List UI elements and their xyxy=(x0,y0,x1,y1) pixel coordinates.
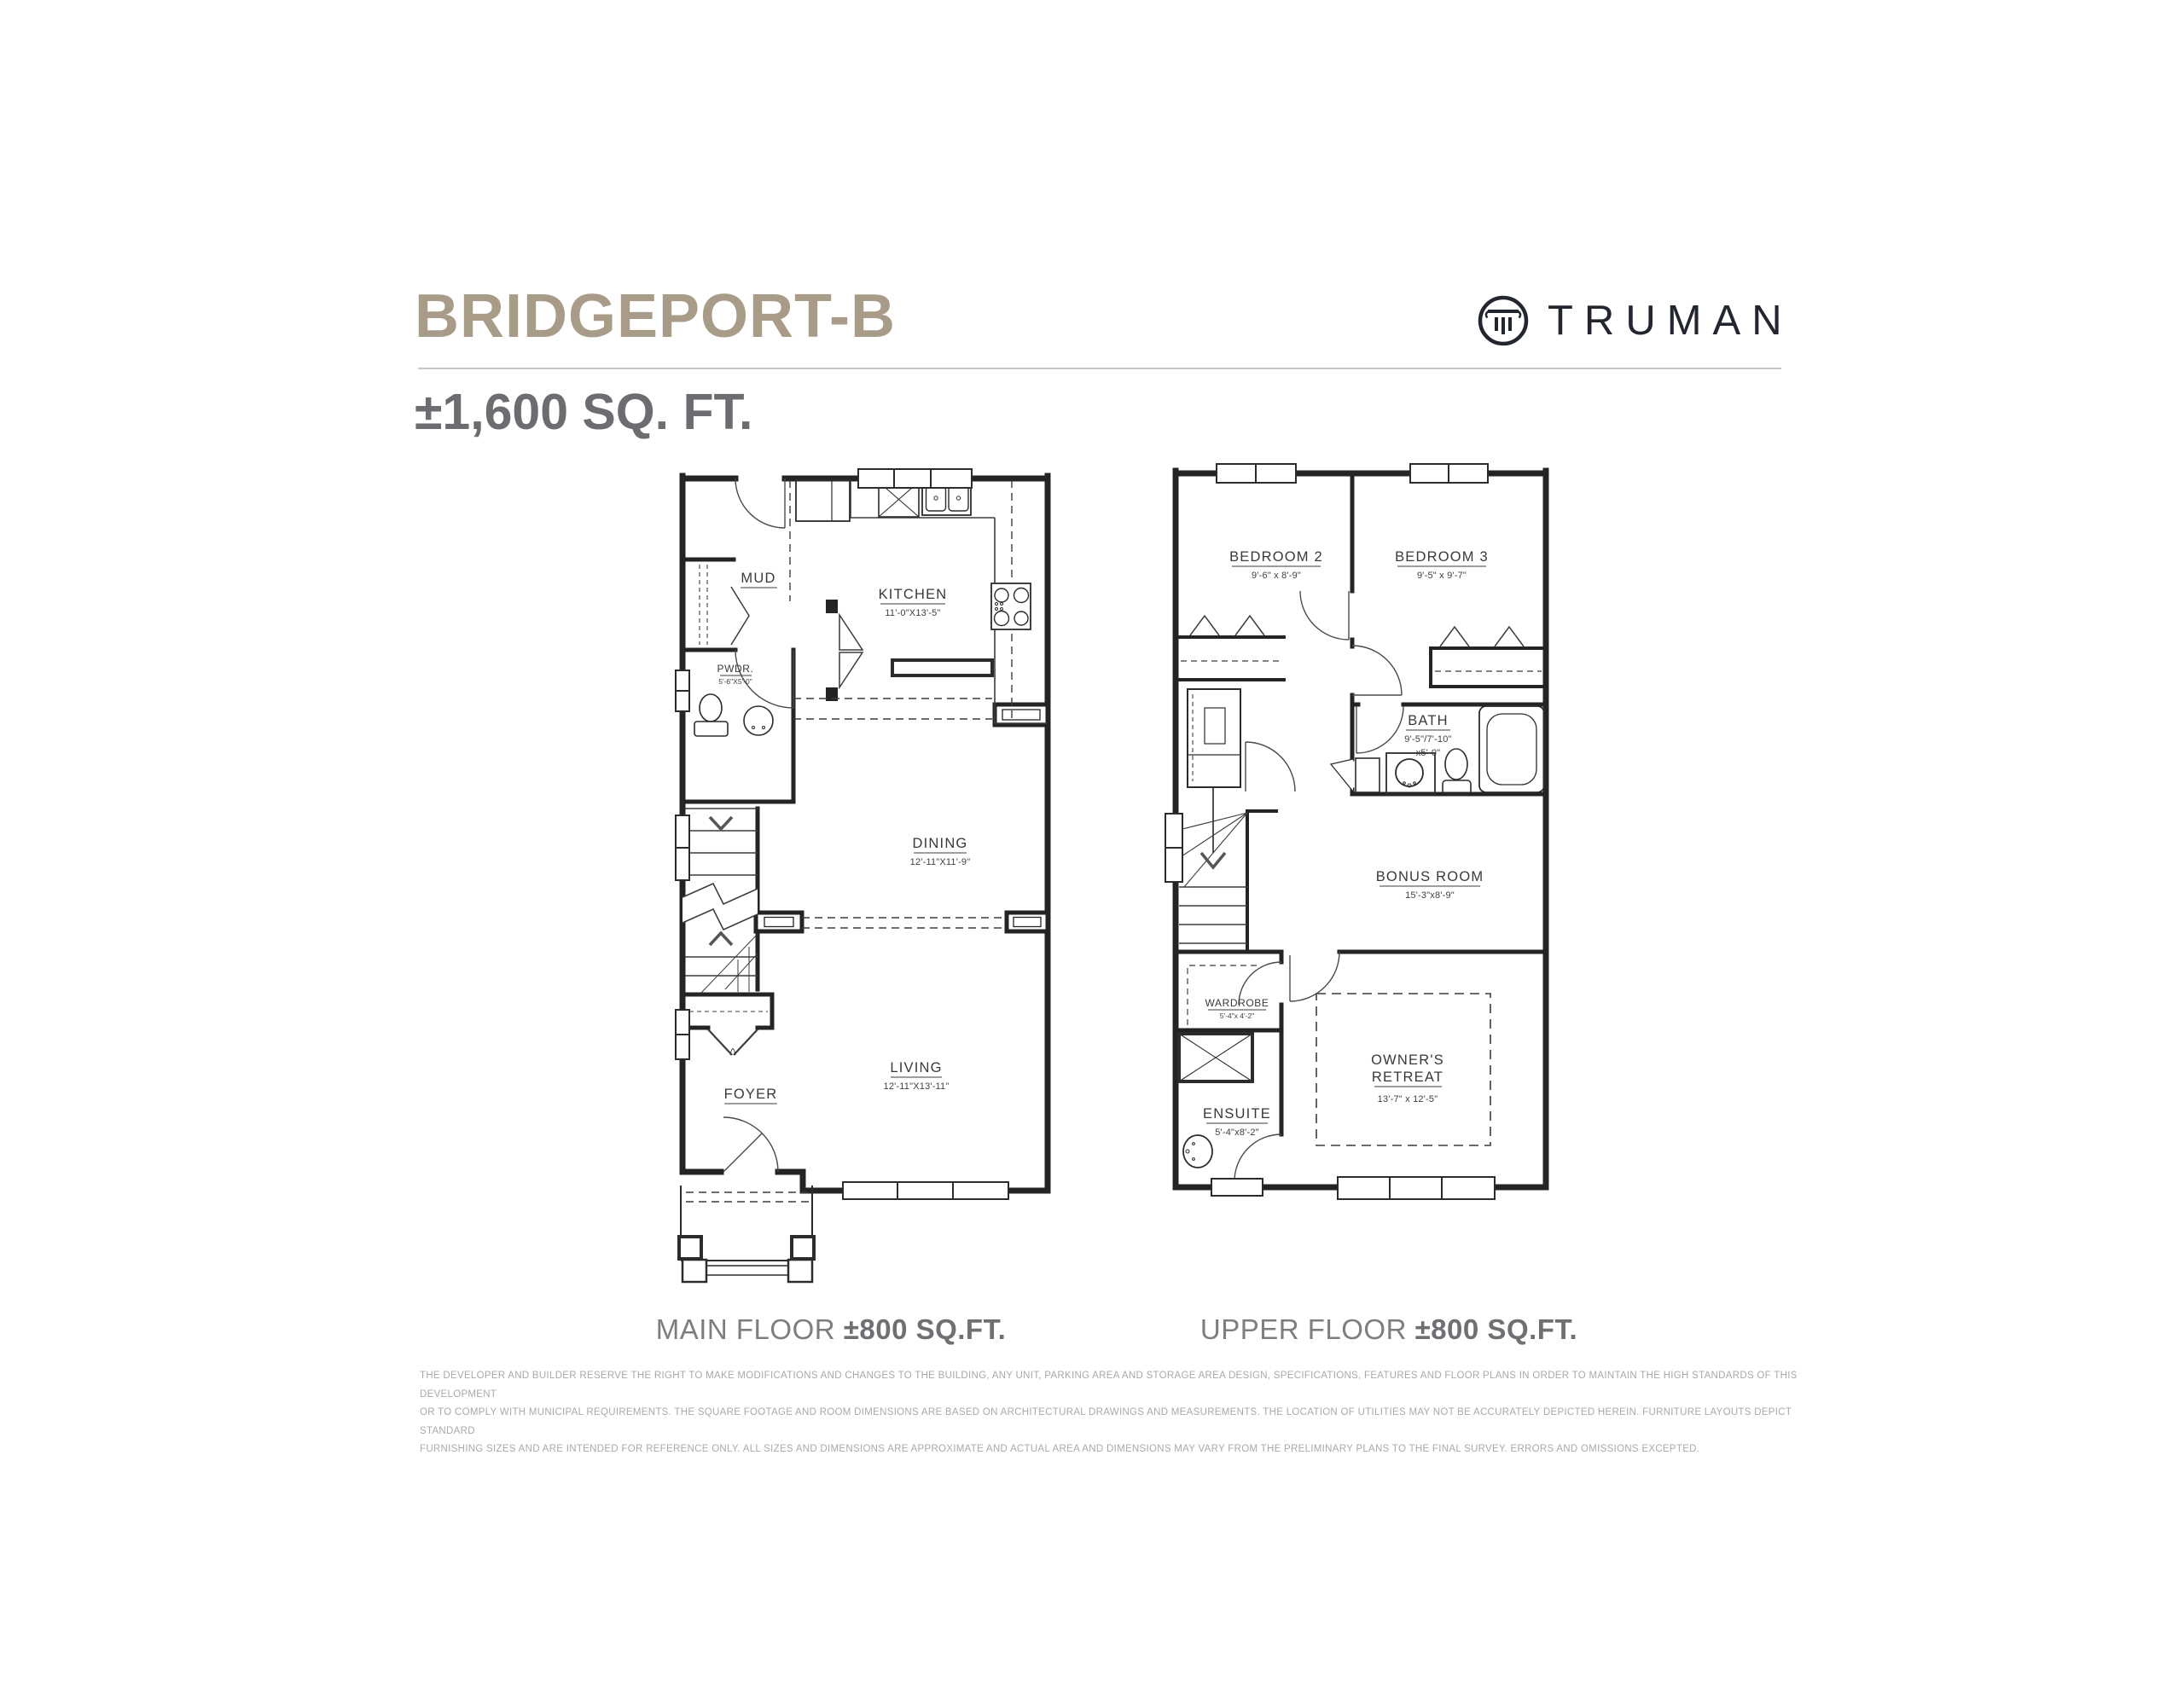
entry-door xyxy=(723,1117,778,1172)
bath-door xyxy=(1356,706,1403,753)
total-area: ±1,600 SQ. FT. xyxy=(415,383,752,441)
upper-floor-plan: BEDROOM 2 9'-6" x 8'-9" BEDROOM 3 9'-5" … xyxy=(1164,459,1553,1220)
main-floor-plan: MUD PWDR. 5'-6"X5'-0" KITCHEN 11'-0"X13'… xyxy=(674,461,1060,1316)
upper-floor-caption-label: UPPER FLOOR xyxy=(1200,1313,1407,1345)
room-dims-bedroom3: 9'-5" x 9'-7" xyxy=(1417,571,1467,581)
room-dims-dining: 12'-11"X11'-9" xyxy=(910,857,971,867)
room-dims-owners: 13'-7" x 12'-5" xyxy=(1378,1094,1438,1104)
brand-logo: TRUMAN xyxy=(1476,293,1793,348)
bedroom3-closet-bifold xyxy=(1440,627,1524,646)
room-label-owners-2: RETREAT xyxy=(1372,1070,1443,1085)
main-closet-doors xyxy=(708,587,863,1055)
room-dims-bedroom2: 9'-6" x 8'-9" xyxy=(1252,571,1301,581)
room-dims-bath-1: 9'-5"/7'-10" xyxy=(1404,734,1451,745)
room-label-pwdr: PWDR. xyxy=(717,663,754,675)
brand-name: TRUMAN xyxy=(1548,293,1793,348)
bedroom2-closet-bifold xyxy=(1190,616,1264,635)
room-label-kitchen: KITCHEN xyxy=(879,587,948,602)
pantry-door-lower xyxy=(839,652,863,687)
main-floor-caption: MAIN FLOOR ±800 SQ.FT. xyxy=(635,1313,1027,1346)
room-label-owners-1: OWNER'S xyxy=(1371,1052,1444,1068)
room-dims-ensuite: 5'-4"x8'-2" xyxy=(1215,1128,1259,1138)
porch-post xyxy=(679,1237,701,1259)
kitchen-window xyxy=(858,469,972,488)
owners-window xyxy=(1338,1177,1495,1199)
pantry-door-upper xyxy=(839,615,863,650)
stair-down-arrow xyxy=(1201,853,1225,867)
room-dims-bath-2: x5'-0" xyxy=(1416,748,1441,758)
fridge xyxy=(796,480,850,521)
ensuite-shower xyxy=(1179,1034,1252,1081)
foyer-closet-bifold xyxy=(708,1029,758,1055)
disclaimer-line-2: OR TO COMPLY WITH MUNICIPAL REQUIREMENTS… xyxy=(420,1404,1802,1441)
main-wall-stubs xyxy=(756,600,1048,931)
header-divider xyxy=(418,368,1781,369)
mud-closet-bifold xyxy=(731,587,749,645)
room-dims-kitchen: 11'-0"X13'-5" xyxy=(885,608,940,618)
room-label-foyer: FOYER xyxy=(724,1087,778,1102)
laundry-door xyxy=(1246,742,1295,791)
bath-vanity-sink xyxy=(1386,753,1435,794)
powder-toilet xyxy=(694,694,728,736)
main-floor-caption-area: ±800 SQ.FT. xyxy=(844,1313,1007,1345)
living-window xyxy=(843,1182,1008,1199)
disclaimer-line-1: THE DEVELOPER AND BUILDER RESERVE THE RI… xyxy=(420,1367,1802,1404)
upper-floor-caption-area: ±800 SQ.FT. xyxy=(1415,1313,1578,1345)
ensuite-window xyxy=(1211,1179,1263,1196)
room-dims-pwdr: 5'-6"X5'-0" xyxy=(718,677,752,686)
porch-post xyxy=(792,1237,814,1259)
upper-floor-caption: UPPER FLOOR ±800 SQ.FT. xyxy=(1193,1313,1585,1346)
room-dims-wardrobe: 5'-4"x 4'-2" xyxy=(1220,1012,1254,1020)
linen-closet xyxy=(1331,758,1380,792)
ensuite-door xyxy=(1234,1134,1281,1181)
ensuite-sink xyxy=(1183,1135,1212,1168)
room-label-bedroom3: BEDROOM 3 xyxy=(1395,549,1489,565)
upper-closet-bifolds xyxy=(1190,616,1524,646)
main-stairs xyxy=(682,809,758,993)
room-label-bedroom2: BEDROOM 2 xyxy=(1229,549,1323,565)
page-title: BRIDGEPORT-B xyxy=(415,281,896,351)
bedroom3-door xyxy=(1352,646,1402,695)
stair-up-arrow xyxy=(710,933,732,945)
stove xyxy=(991,583,1031,629)
disclaimer: THE DEVELOPER AND BUILDER RESERVE THE RI… xyxy=(420,1367,1802,1459)
floor-plan-brochure: BRIDGEPORT-B TRUMAN ±1,600 SQ. FT. xyxy=(0,0,2184,1687)
powder-sink xyxy=(744,706,773,735)
stair-down-arrow xyxy=(710,817,732,829)
back-door xyxy=(735,478,785,528)
main-floor-caption-label: MAIN FLOOR xyxy=(656,1313,835,1345)
disclaimer-line-3: FURNISHING SIZES AND ARE INTENDED FOR RE… xyxy=(420,1441,1802,1459)
laundry-closet xyxy=(1188,689,1240,787)
room-dims-living: 12'-11"X13'-11" xyxy=(884,1081,950,1092)
room-label-dining: DINING xyxy=(913,836,968,851)
room-label-mud: MUD xyxy=(741,571,775,586)
bath-toilet xyxy=(1443,749,1471,794)
kitchen-peninsula xyxy=(892,660,992,675)
room-label-ensuite: ENSUITE xyxy=(1203,1106,1271,1122)
room-label-wardrobe: WARDROBE xyxy=(1205,997,1269,1009)
room-label-bonus: BONUS ROOM xyxy=(1376,869,1484,884)
bedroom2-door xyxy=(1300,591,1349,640)
room-label-living: LIVING xyxy=(890,1060,942,1075)
truman-column-icon xyxy=(1476,293,1531,348)
porch xyxy=(679,1186,814,1282)
bathtub xyxy=(1479,706,1544,792)
room-label-bath: BATH xyxy=(1408,713,1449,728)
room-dims-bonus: 15'-3"x8'-9" xyxy=(1405,890,1455,901)
